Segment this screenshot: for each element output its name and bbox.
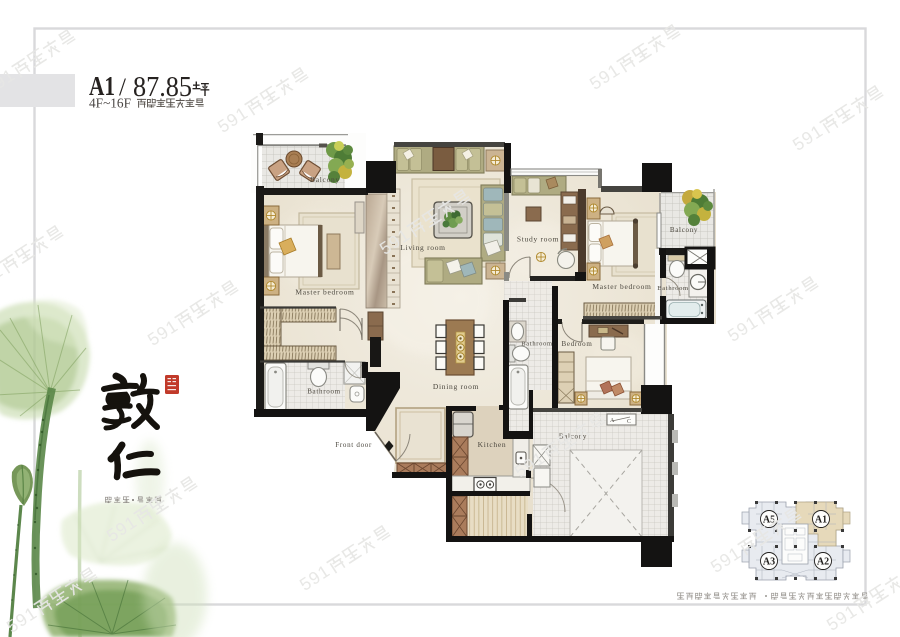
svg-text:Dining room: Dining room <box>433 382 479 391</box>
svg-text:Master bedroom: Master bedroom <box>592 282 651 291</box>
svg-text:C: C <box>627 419 631 425</box>
svg-text:Front door: Front door <box>335 441 372 449</box>
svg-text:A: A <box>610 418 615 424</box>
svg-text:Kitchen: Kitchen <box>478 440 507 449</box>
svg-text:87.85: 87.85 <box>133 72 192 103</box>
svg-text:A3: A3 <box>763 556 775 567</box>
svg-text:Bathroom: Bathroom <box>657 285 689 292</box>
svg-text:Bathroom: Bathroom <box>521 341 553 348</box>
svg-text:Balcony: Balcony <box>670 226 698 234</box>
svg-text:4F~16F: 4F~16F <box>89 96 131 111</box>
svg-text:Study room: Study room <box>517 235 559 244</box>
svg-text:A1: A1 <box>815 514 827 525</box>
svg-text:Bathroom: Bathroom <box>307 388 341 396</box>
svg-text:Balcony: Balcony <box>310 175 340 184</box>
svg-text:A2: A2 <box>817 556 829 567</box>
svg-text:Master bedroom: Master bedroom <box>295 288 354 297</box>
